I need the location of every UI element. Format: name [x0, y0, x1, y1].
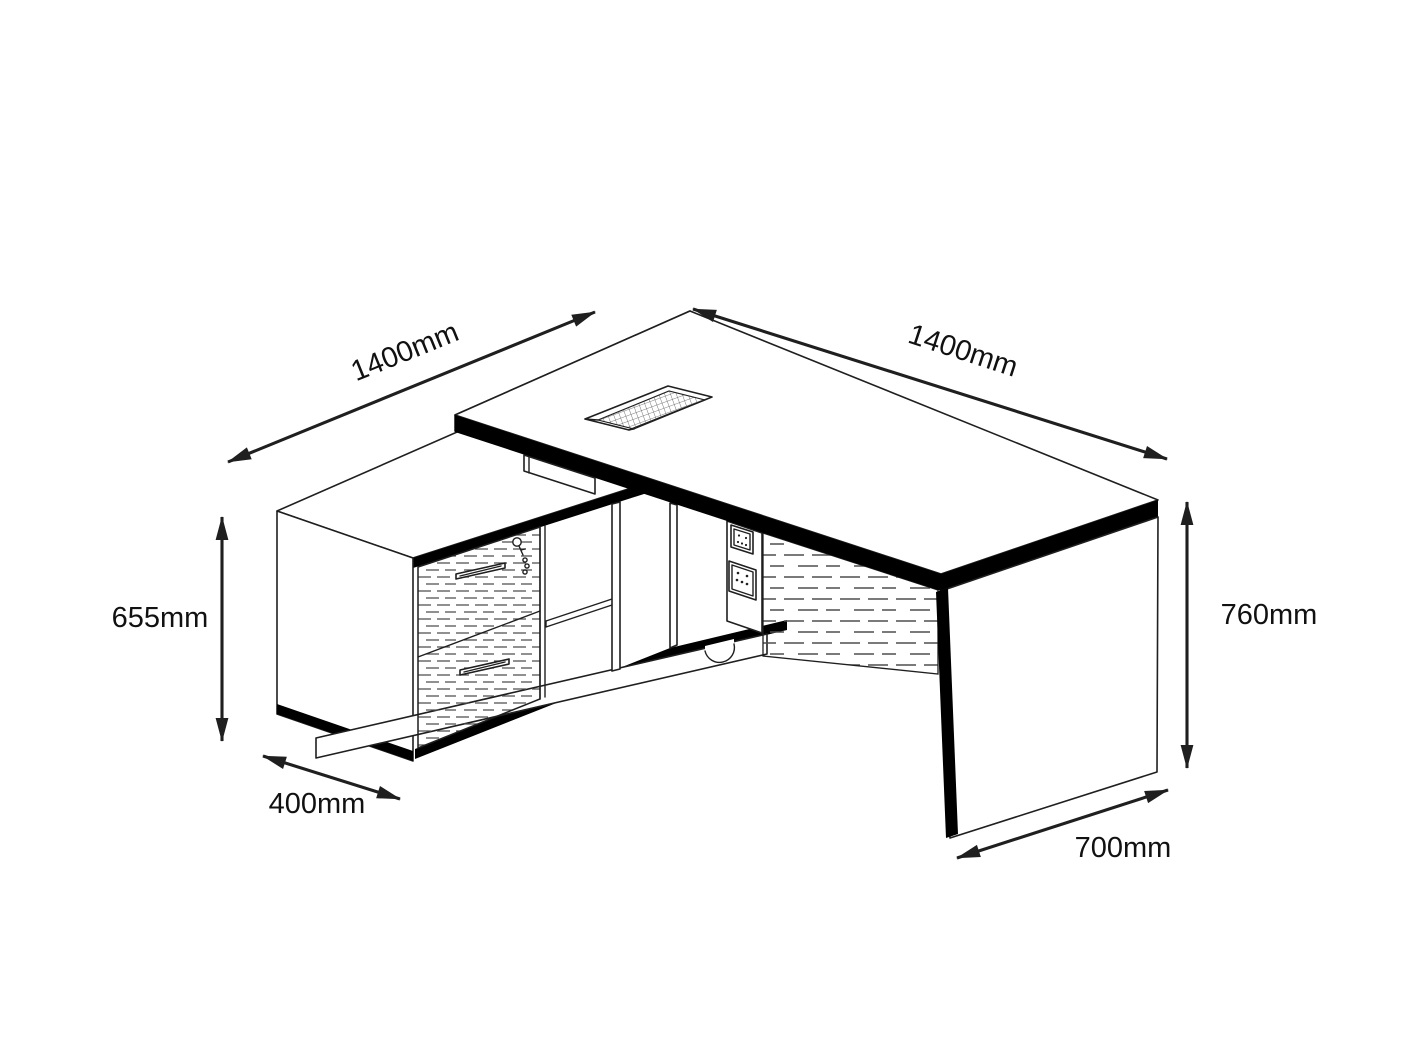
shelf-divider-2 — [670, 503, 677, 648]
open-shelf — [546, 502, 677, 671]
shelf-divider-1 — [612, 502, 620, 671]
dimension-cabinet-height: 655mm — [112, 517, 222, 741]
power-socket-strip — [727, 521, 762, 633]
return-length-label: 1400mm — [347, 316, 464, 388]
cabinet-depth-label: 400mm — [269, 788, 366, 820]
diagram-page: 1400mm 1400mm 655mm 400mm 760mm 700mm — [0, 0, 1417, 1063]
desk-length-label: 1400mm — [904, 318, 1021, 383]
desk-dimension-diagram: 1400mm 1400mm 655mm 400mm 760mm 700mm — [0, 0, 1417, 1063]
desk-depth-label: 700mm — [1075, 832, 1172, 864]
dimension-desk-height: 760mm — [1187, 502, 1317, 768]
desk-height-label: 760mm — [1221, 599, 1318, 631]
cabinet-height-label: 655mm — [112, 602, 209, 634]
dimension-cabinet-depth: 400mm — [263, 756, 400, 820]
shelf-board — [546, 599, 612, 627]
